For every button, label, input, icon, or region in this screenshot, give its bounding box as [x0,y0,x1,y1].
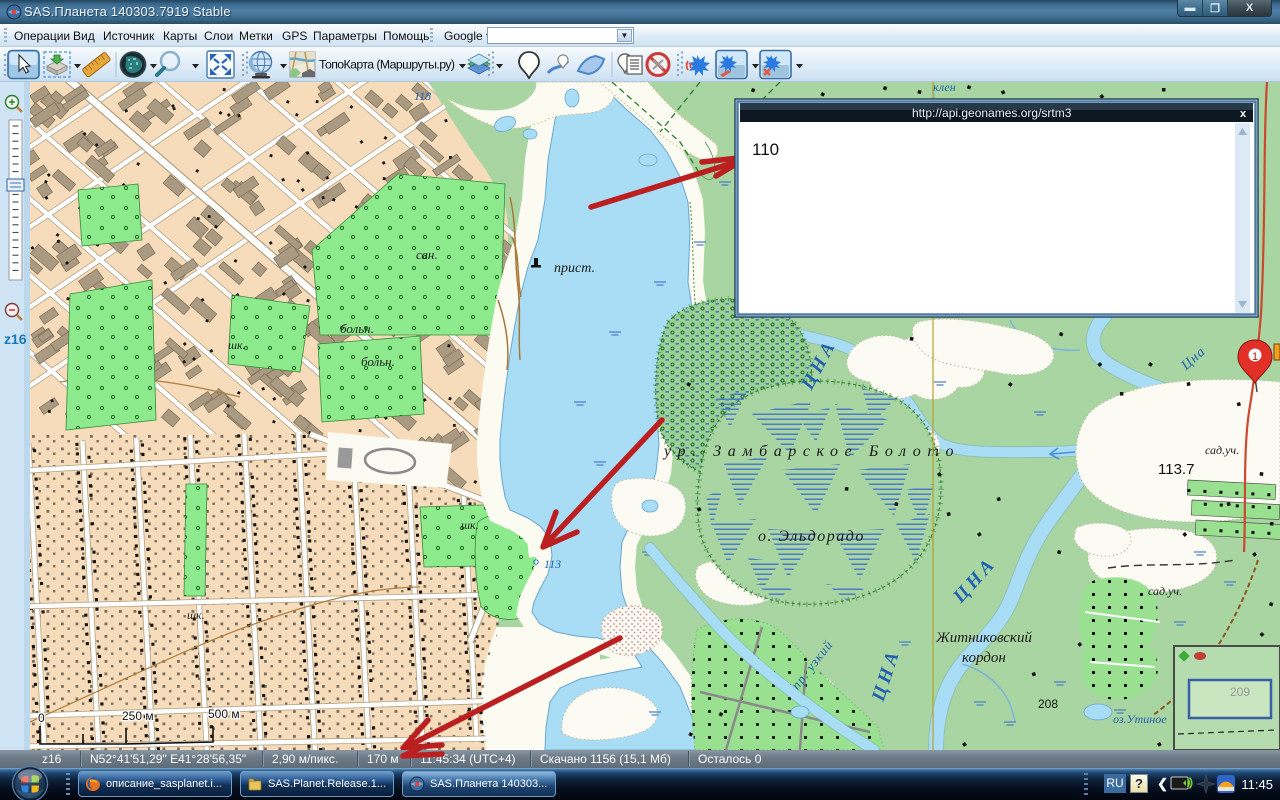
svg-text:сад.уч.: сад.уч. [1148,584,1182,598]
svg-text:500 м: 500 м [208,707,240,721]
svg-text:z16: z16 [4,331,27,347]
svg-text:клен: клен [933,82,956,94]
svg-text:http://api.geonames.org/srtm3: http://api.geonames.org/srtm3 [912,106,1072,120]
svg-text:оз.Утиное: оз.Утиное [1113,712,1167,726]
svg-text:0: 0 [38,711,45,725]
svg-text:ур. Замбарское Болото: ур. Замбарское Болото [662,443,958,460]
svg-text:113.7: 113.7 [1158,461,1194,478]
svg-text:Житниковский: Житниковский [935,630,1032,646]
svg-text:118: 118 [414,89,431,103]
svg-text:сан.: сан. [416,247,438,262]
svg-text:1: 1 [1252,351,1258,363]
svg-text:ТопоКарта (Маршруты.ру): ТопоКарта (Маршруты.ру) [319,58,455,72]
svg-text:больн.: больн. [361,354,395,369]
svg-text:шк.: шк. [187,608,205,622]
svg-text:шк.: шк. [461,518,479,532]
svg-text:110: 110 [752,140,779,159]
svg-text:сад.уч.: сад.уч. [1205,443,1239,457]
svg-text:250 м: 250 м [122,709,154,723]
svg-text:больн.: больн. [340,321,374,336]
svg-text:прист.: прист. [554,261,595,276]
svg-text:209: 209 [1230,685,1250,699]
svg-text:кордон: кордон [962,650,1006,666]
svg-text:шк.: шк. [228,338,246,352]
svg-text:о. Эльдорадо: о. Эльдорадо [758,528,865,545]
svg-text:x: x [1240,108,1247,120]
svg-text:208: 208 [1038,697,1058,711]
svg-text:113: 113 [544,557,561,571]
